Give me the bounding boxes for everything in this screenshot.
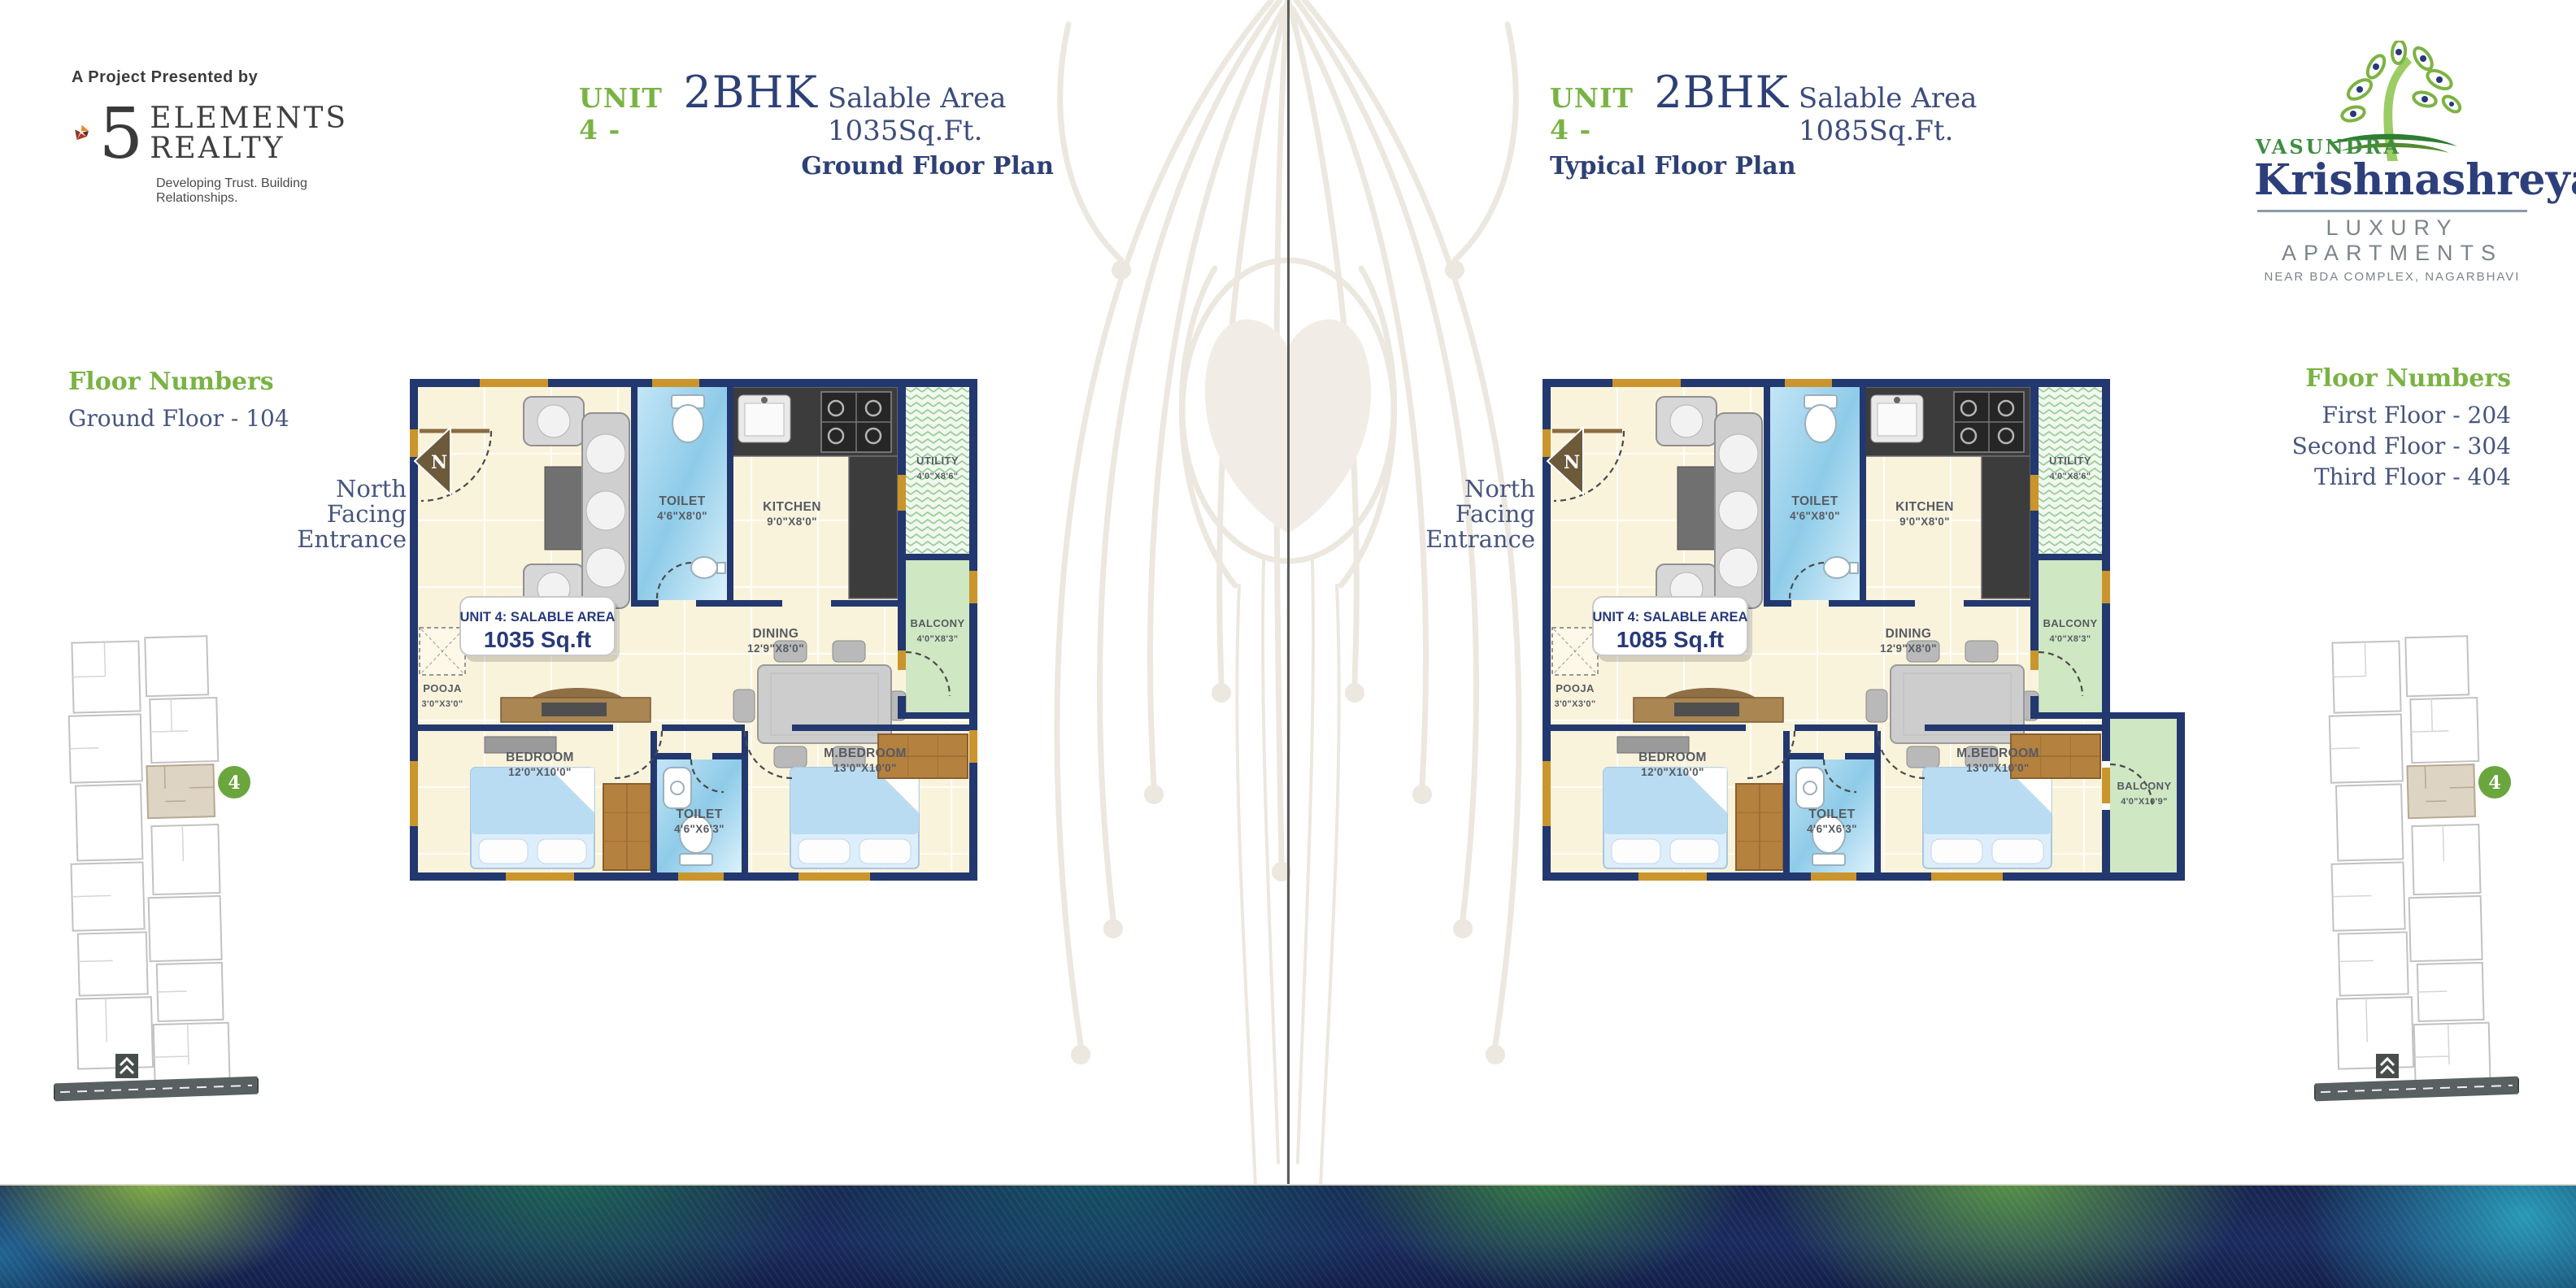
room-label-utility: UTILITY [2049, 455, 2091, 467]
key-plan-svg: 4 [2314, 634, 2519, 1122]
room-label-balcony: BALCONY [910, 617, 964, 629]
unit-number: 4 [2488, 772, 2500, 794]
unit-number-badge: 4 [218, 766, 250, 798]
floor-plan-typical-host: LIVING12'0"X16'3"TOILET4'6"X8'0"KITCHEN9… [1543, 379, 2187, 883]
floor-number-line: Ground Floor - 104 [68, 403, 289, 434]
floor-number-line: Third Floor - 404 [2292, 462, 2511, 493]
room-label-pooja: POOJA [423, 682, 462, 694]
presenter-logo: A Project Presented by 5 ELEMENTS REALTY… [72, 68, 348, 206]
pooja-niche [1552, 628, 1598, 675]
floor-plan-ground-host: LIVING12'0"X16'3"TOILET4'6"X8'0"KITCHEN9… [410, 379, 1054, 883]
left-plan-title: UNIT 4 - 2BHK Salable Area 1035Sq.Ft. Gr… [579, 67, 1067, 181]
floor-numbers-left: Floor Numbers Ground Floor - 104 [68, 368, 289, 434]
building-outline [2326, 636, 2491, 1094]
room-label-dining: DINING [753, 627, 799, 641]
room-label-balcony_extra: BALCONY [2117, 780, 2171, 792]
building-outline [65, 636, 230, 1094]
highlighted-unit [146, 764, 215, 818]
five-elements-pinwheel-icon [72, 95, 93, 173]
pooja-niche [420, 628, 465, 675]
bed-bedroom [471, 768, 594, 868]
developer-name: Krishnashreya [2254, 155, 2530, 205]
room-label-toilet_top: TOILET [659, 494, 705, 508]
room-label-pooja: POOJA [1556, 682, 1595, 694]
driveway-marker [2376, 1054, 2399, 1078]
compass-letter: N [431, 452, 447, 473]
compass-letter: N [1564, 452, 1580, 473]
brand-line2: REALTY [150, 134, 348, 164]
bed-bedroom [1603, 768, 1727, 868]
room-label-kitchen: KITCHEN [763, 500, 821, 514]
stove-icon [821, 392, 891, 452]
badge-title: UNIT 4: SALABLE AREA [460, 610, 616, 624]
room-label-master_bedroom: M.BEDROOM [824, 746, 907, 760]
presented-by-label: A Project Presented by [72, 68, 348, 87]
salable-area-badge: UNIT 4: SALABLE AREA1085 Sq.ft [1593, 597, 1752, 662]
room-label-master_bedroom: M.BEDROOM [1956, 746, 2039, 760]
unit-number: 4 [228, 772, 240, 794]
north-facing-note-right: North Facing Entrance [1403, 476, 1535, 552]
extra-balcony-floor [2110, 719, 2177, 872]
bed-master-bedroom [1923, 768, 2052, 868]
brand-number: 5 [99, 107, 144, 163]
left-bhk-label: 2BHK [683, 67, 817, 118]
logo-divider-rule [2257, 210, 2527, 212]
room-label-bedroom: BEDROOM [506, 751, 574, 764]
left-unit-label: UNIT 4 - [579, 82, 673, 146]
floor-number-line: First Floor - 204 [2292, 400, 2511, 431]
floor-number-line: Second Floor - 304 [2292, 431, 2511, 462]
right-unit-label: UNIT 4 - [1550, 82, 1644, 146]
room-label-bedroom: BEDROOM [1638, 751, 1707, 764]
room-dim-balcony: 4'0"X8'3" [916, 634, 958, 644]
room-dim-balcony: 4'0"X8'3" [2049, 634, 2091, 644]
floor-plan-ground-svg: LIVING12'0"X16'3"TOILET4'6"X8'0"KITCHEN9… [410, 379, 1054, 883]
room-dim-master_bedroom: 13'0"X10'0" [833, 762, 897, 774]
unit-number-badge: 4 [2478, 766, 2511, 798]
developer-logo: VASUNDRA Krishnashreya LUXURY APARTMENTS… [2254, 41, 2530, 284]
north-facing-note-left: North Facing Entrance [275, 476, 407, 552]
room-dim-master_bedroom: 13'0"X10'0" [1966, 762, 2030, 774]
room-dim-toilet_bottom: 4'6"X6'3" [1807, 823, 1857, 835]
salable-area-badge: UNIT 4: SALABLE AREA1035 Sq.ft [460, 597, 620, 662]
left-area-label: Salable Area 1035Sq.Ft. [828, 82, 1067, 147]
road [2314, 1076, 2519, 1101]
wardrobe-bedroom [1736, 784, 1783, 870]
driveway-marker [115, 1054, 138, 1078]
floor-numbers-title: Floor Numbers [68, 368, 289, 396]
developer-location: NEAR BDA COMPLEX, NAGARBHAVI [2254, 270, 2530, 284]
page-divider [1287, 0, 1290, 1186]
bed-master-bedroom [790, 768, 919, 868]
room-dim-balcony_extra: 4'0"X10'9" [2121, 797, 2168, 807]
developer-type: LUXURY APARTMENTS [2254, 215, 2530, 266]
room-label-balcony: BALCONY [2043, 617, 2097, 629]
badge-title: UNIT 4: SALABLE AREA [1593, 610, 1748, 624]
key-plan-left-host: 4 [54, 634, 259, 1122]
badge-area: 1035 Sq.ft [484, 627, 591, 652]
room-dim-dining: 12'9"X8'0" [1880, 642, 1937, 655]
room-dim-toilet_bottom: 4'6"X6'3" [674, 823, 724, 835]
room-label-toilet_bottom: TOILET [1808, 807, 1855, 821]
room-label-kitchen: KITCHEN [1895, 500, 1954, 514]
room-label-toilet_bottom: TOILET [676, 807, 722, 821]
room-dim-toilet_top: 4'6"X8'0" [657, 510, 707, 522]
room-dim-dining: 12'9"X8'0" [747, 642, 804, 655]
left-plan-type: Ground Floor Plan [579, 152, 1067, 181]
badge-area: 1085 Sq.ft [1617, 627, 1724, 652]
room-dim-kitchen: 9'0"X8'0" [767, 516, 817, 528]
room-label-toilet_top: TOILET [1791, 494, 1838, 508]
right-plan-type: Typical Floor Plan [1550, 152, 2038, 181]
key-plan-svg: 4 [54, 634, 259, 1122]
room-dim-bedroom: 12'0"X10'0" [508, 766, 572, 778]
key-plan-right-host: 4 [2314, 634, 2519, 1122]
brand-line1: ELEMENTS [150, 104, 348, 134]
right-bhk-label: 2BHK [1654, 67, 1788, 118]
floor-plan-typical-svg: LIVING12'0"X16'3"TOILET4'6"X8'0"KITCHEN9… [1543, 379, 2187, 883]
brand-tagline: Developing Trust. Building Relationships… [156, 176, 348, 206]
stove-icon [1954, 392, 2024, 452]
room-label-dining: DINING [1886, 627, 1932, 641]
room-dim-toilet_top: 4'6"X8'0" [1790, 510, 1840, 522]
right-plan-title: UNIT 4 - 2BHK Salable Area 1085Sq.Ft. Ty… [1550, 67, 2038, 181]
room-dim-bedroom: 12'0"X10'0" [1641, 766, 1704, 778]
floor-numbers-right: Floor Numbers First Floor - 204 Second F… [2292, 364, 2511, 493]
floor-numbers-title: Floor Numbers [2292, 364, 2511, 393]
room-dim-pooja: 3'0"X3'0" [421, 699, 463, 709]
highlighted-unit [2407, 764, 2475, 818]
room-dim-kitchen: 9'0"X8'0" [1899, 516, 1950, 528]
room-label-utility: UTILITY [916, 455, 959, 467]
wardrobe-bedroom [603, 784, 651, 870]
room-dim-utility: 4'0"X8'6" [2049, 472, 2091, 481]
road [54, 1076, 259, 1101]
room-dim-utility: 4'0"X8'6" [916, 472, 958, 481]
right-area-label: Salable Area 1085Sq.Ft. [1799, 82, 2038, 147]
room-dim-pooja: 3'0"X3'0" [1554, 699, 1595, 709]
peacock-feather-strip [0, 1184, 2576, 1288]
